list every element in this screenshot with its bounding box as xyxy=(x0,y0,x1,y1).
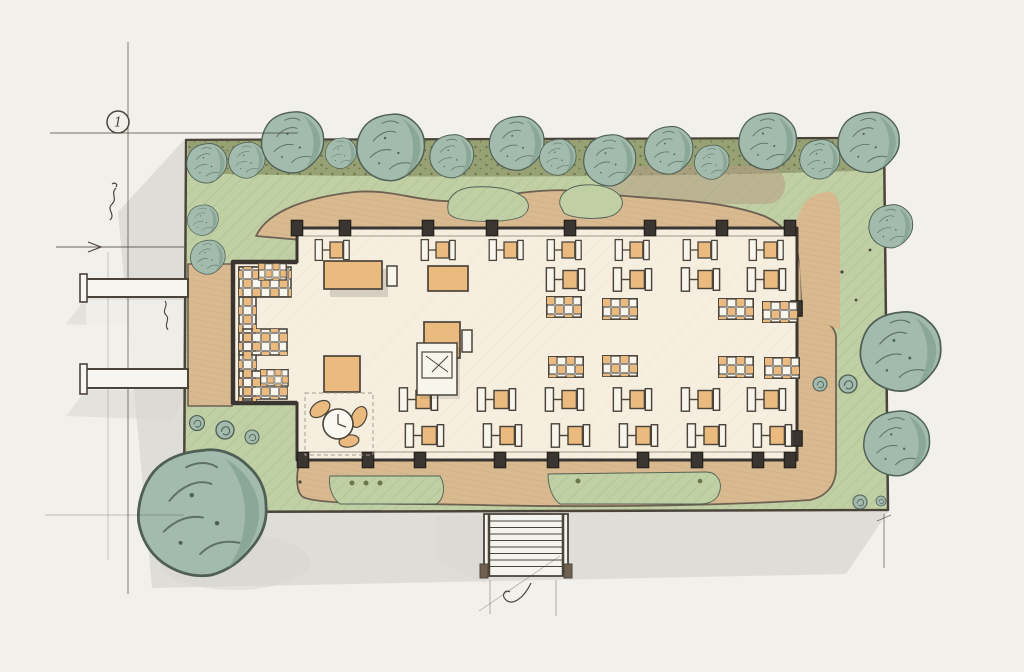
desk-chair-cluster xyxy=(315,240,349,261)
entry-arrow-sketch xyxy=(504,583,531,602)
shrub-symbol xyxy=(216,421,234,439)
floor-plan-drawing: 1 xyxy=(0,0,1024,672)
entry-stairs xyxy=(479,514,572,616)
handwritten-scribble xyxy=(110,183,117,220)
grid-reference-label: 1 xyxy=(114,116,122,131)
floor-mat xyxy=(417,343,460,399)
cubby-table xyxy=(547,297,581,317)
walkway-ramp xyxy=(84,279,188,297)
walkway-ramp xyxy=(84,369,188,388)
building xyxy=(233,220,802,467)
sketch-floor-plan: 1 xyxy=(0,0,1024,672)
